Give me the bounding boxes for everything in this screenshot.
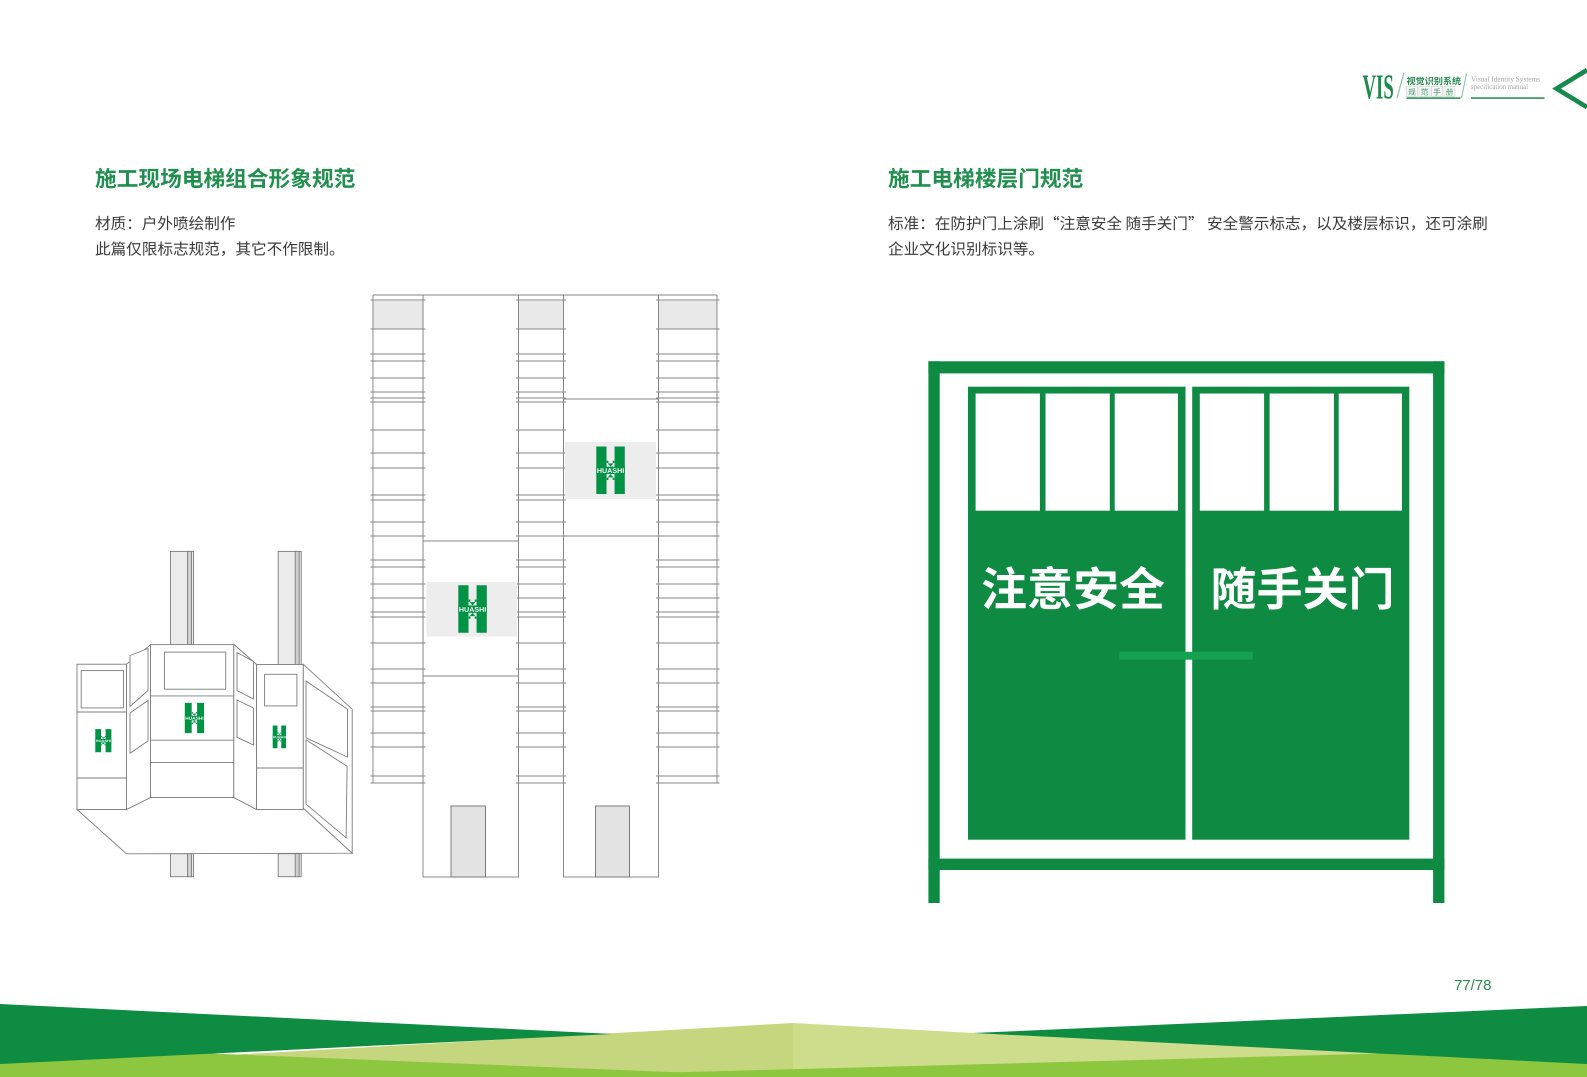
svg-text:77/78: 77/78 <box>1454 977 1492 994</box>
svg-text:specification manual: specification manual <box>1471 82 1528 91</box>
svg-text:VIS: VIS <box>1363 69 1394 108</box>
